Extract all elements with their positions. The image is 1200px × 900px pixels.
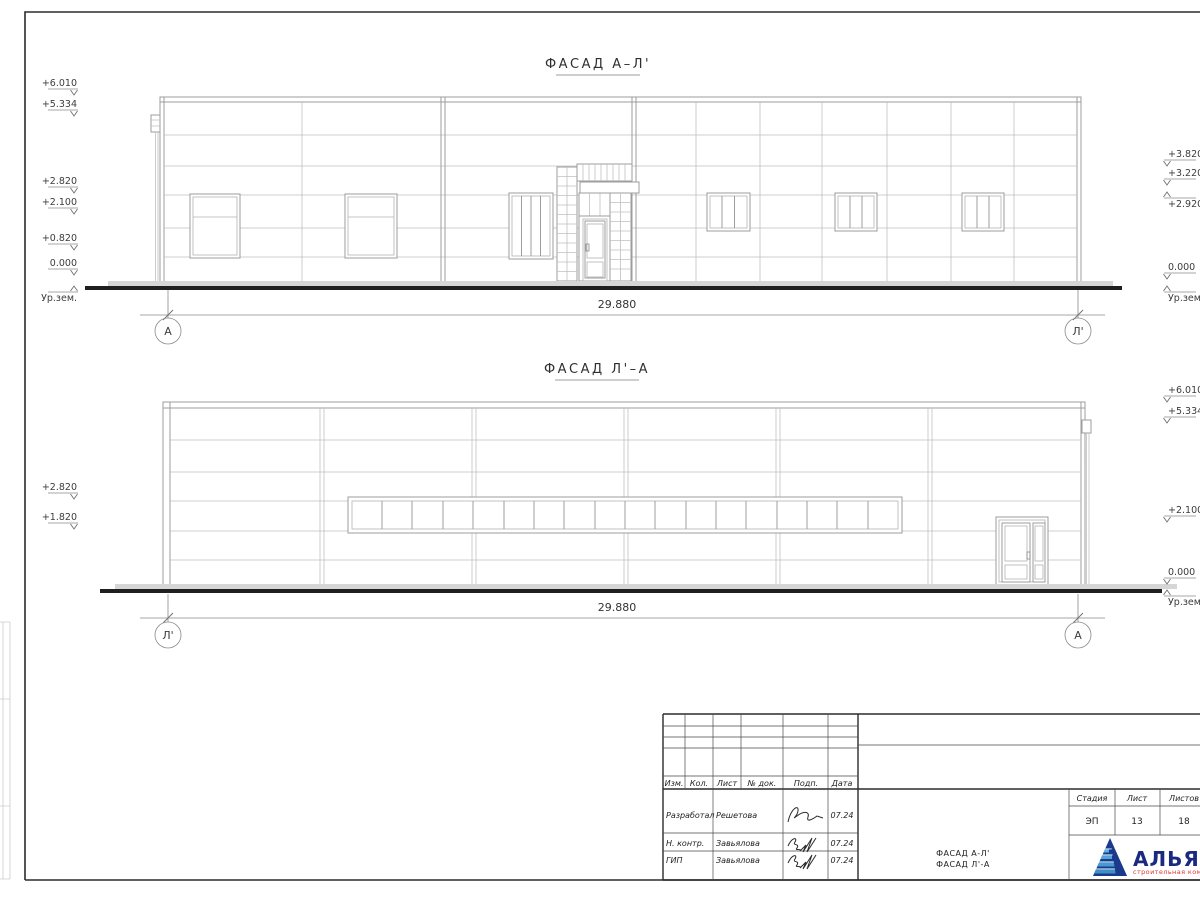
window-small-2 — [835, 193, 877, 231]
elevation-mark: 0.000 — [48, 258, 78, 275]
ground-level-mark: Ур.зем. — [1164, 590, 1200, 608]
facade-drawing-canvas: ФАСАД А–Л' — [0, 0, 1200, 900]
binding-margin-cells — [0, 622, 10, 879]
elevation-mark: +1.820 — [42, 512, 78, 529]
elevation-mark: 0.000 — [1164, 567, 1197, 584]
axis-label-left: А — [164, 325, 172, 338]
rear-door — [986, 517, 1058, 590]
svg-text:+2.920: +2.920 — [1168, 199, 1200, 210]
axis-label-right: Л' — [1072, 325, 1083, 338]
ground-line — [85, 286, 1122, 290]
elevation-mark: +6.010 — [42, 78, 78, 95]
downspout-pipe — [1087, 433, 1090, 584]
window-frame — [345, 194, 397, 258]
doc-title-line2: ФАСАД Л'-А — [936, 860, 990, 869]
downspout-funnel — [1082, 420, 1091, 433]
sheets-label: Листов — [1168, 794, 1199, 803]
role: Разработал — [666, 811, 714, 820]
svg-text:+5.334: +5.334 — [42, 99, 77, 110]
col-podp: Подп. — [794, 779, 818, 788]
elevation-mark: +2.100 — [1164, 505, 1200, 522]
row-gip: ГИП Завьялова 07.24 — [666, 855, 853, 869]
col-ndok: № док. — [747, 779, 777, 788]
door-frame — [579, 216, 611, 281]
stage-label: Стадия — [1077, 794, 1108, 803]
window-frame — [190, 194, 240, 258]
door-frame — [996, 517, 1048, 585]
svg-text:+2.820: +2.820 — [42, 176, 77, 187]
svg-text:+6.010: +6.010 — [1168, 385, 1200, 396]
axis-label-left: Л' — [162, 629, 173, 642]
axis-label-right: А — [1074, 629, 1082, 642]
sheet-value: 13 — [1131, 817, 1142, 827]
downspout-pipe — [151, 120, 160, 283]
ground-level-mark: Ур.зем. — [1164, 286, 1200, 304]
col-kol: Кол. — [690, 779, 708, 788]
name: Решетова — [716, 811, 757, 820]
svg-text:+2.100: +2.100 — [1168, 505, 1200, 516]
date: 07.24 — [831, 856, 854, 865]
downspout-left — [151, 115, 160, 283]
ribbon-window — [348, 497, 902, 533]
elevation-mark: +5.334 — [1164, 406, 1200, 423]
sheet-label: Лист — [1126, 794, 1148, 803]
svg-text:+0.820: +0.820 — [42, 233, 77, 244]
door-transom — [579, 193, 611, 216]
col-izm: Изм. — [665, 779, 684, 788]
role: ГИП — [666, 856, 682, 865]
row-developer: Разработал Решетова 07.24 — [666, 808, 853, 822]
signature-icon — [788, 838, 816, 852]
window-2 — [345, 194, 397, 258]
svg-text:+1.820: +1.820 — [42, 512, 77, 523]
signature-icon — [788, 855, 816, 869]
name: Завьялова — [716, 856, 760, 865]
facade-a-l: ФАСАД А–Л' — [41, 57, 1200, 344]
revision-table-lines — [663, 714, 858, 789]
svg-text:Ур.зем.: Ур.зем. — [1168, 597, 1200, 608]
window-frame — [962, 193, 1004, 231]
window-small-3 — [962, 193, 1004, 231]
svg-text:+5.334: +5.334 — [1168, 406, 1200, 417]
window-frame — [707, 193, 750, 231]
date: 07.24 — [831, 839, 854, 848]
slat-band — [577, 164, 632, 181]
elevation-mark: +3.220 — [1164, 168, 1200, 185]
sheets-value: 18 — [1178, 817, 1190, 827]
plinth-band — [115, 584, 1177, 589]
svg-text:Ур.зем.: Ур.зем. — [41, 293, 77, 304]
window-1 — [190, 194, 240, 258]
elevation-mark: +6.010 — [1164, 385, 1200, 402]
ground-level-mark: Ур.зем. — [41, 286, 78, 304]
elevation-marks-right: +6.010 +5.334 +2.100 0.000 Ур.зем. — [1164, 385, 1200, 608]
elevation-marks-right: +3.820 +3.220 +2.920 0.000 Ур.зем. — [1164, 149, 1200, 304]
window-frame — [835, 193, 877, 231]
downspout-funnel — [151, 115, 160, 132]
svg-text:0.000: 0.000 — [1168, 262, 1195, 273]
dimension-value: 29.880 — [598, 601, 637, 614]
plinth-band — [108, 281, 1113, 286]
svg-text:+2.100: +2.100 — [42, 197, 77, 208]
facade-l-a-title: ФАСАД Л'–А — [544, 362, 650, 377]
facade-a-l-title: ФАСАД А–Л' — [545, 57, 651, 72]
date: 07.24 — [831, 811, 854, 820]
facade-l-a: ФАСАД Л'–А — [42, 362, 1200, 648]
col-list: Лист — [716, 779, 738, 788]
stage-value: ЭП — [1085, 817, 1098, 827]
role: Н. контр. — [666, 839, 704, 848]
elevation-mark: +2.100 — [42, 197, 78, 214]
svg-text:0.000: 0.000 — [50, 258, 77, 269]
svg-text:+2.820: +2.820 — [42, 482, 77, 493]
drawing-sheet: ФАСАД А–Л' — [0, 0, 1200, 900]
dimension-value: 29.880 — [598, 298, 637, 311]
svg-text:Ур.зем.: Ур.зем. — [1168, 293, 1200, 304]
elevation-mark: +3.820 — [1164, 149, 1200, 166]
signature-icon — [788, 808, 823, 822]
svg-text:+3.220: +3.220 — [1168, 168, 1200, 179]
elevation-marks-left: +6.010 +5.334 +2.820 +2.100 +0.820 0.000… — [41, 78, 78, 304]
svg-text:+6.010: +6.010 — [42, 78, 77, 89]
entrance-canopy — [580, 182, 639, 193]
col-data: Дата — [831, 779, 853, 788]
name: Завьялова — [716, 839, 760, 848]
doc-title-line1: ФАСАД А-Л' — [936, 849, 990, 858]
elevation-mark: +5.334 — [42, 99, 78, 116]
elevation-marks-left: +2.820 +1.820 — [42, 482, 78, 529]
svg-text:0.000: 0.000 — [1168, 567, 1195, 578]
logo-subtitle: строительная компания — [1133, 868, 1200, 876]
signature-table-lines — [663, 789, 858, 880]
elevation-mark: +2.920 — [1164, 192, 1200, 210]
title-block: Изм. Кол. Лист № док. Подп. Дата Разрабо… — [663, 714, 1200, 880]
dimension-top: 29.880 А Л' — [140, 290, 1105, 344]
window-small-1 — [707, 193, 750, 231]
elevation-mark: +0.820 — [42, 233, 78, 250]
elevation-mark: +2.820 — [42, 176, 78, 193]
elevation-mark: +2.820 — [42, 482, 78, 499]
ground-line — [100, 589, 1162, 593]
svg-text:+3.820: +3.820 — [1168, 149, 1200, 160]
dimension-bottom: 29.880 Л' А — [140, 594, 1105, 648]
row-norm-control: Н. контр. Завьялова 07.24 — [666, 838, 853, 852]
company-logo: АЛЬЯНС строительная компания — [1093, 838, 1200, 876]
elevation-mark: 0.000 — [1164, 262, 1197, 279]
